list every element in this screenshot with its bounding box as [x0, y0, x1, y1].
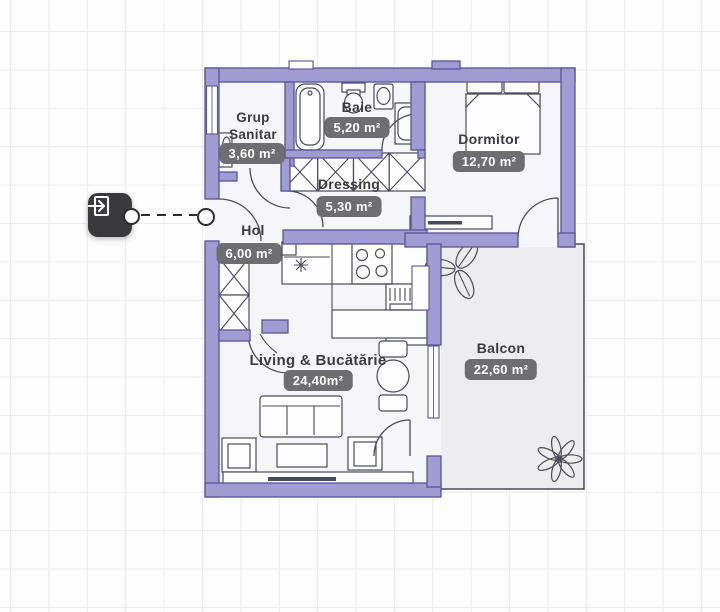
room-label-hol: Hol	[241, 222, 264, 240]
room-label-dormitor: Dormitor	[458, 131, 520, 149]
bathroom-sink	[374, 84, 393, 109]
area-badge-baie: 5,20 m²	[325, 117, 390, 138]
room-label-dressing: Dressing	[318, 176, 380, 194]
floor-plan-drawing	[0, 0, 720, 612]
entry-dashed-connector	[141, 214, 197, 217]
bathtub	[296, 84, 324, 150]
floorplan-canvas: Grup Sanitar 3,60 m² Baie 5,20 m² Dormit…	[0, 0, 720, 612]
sofa	[260, 396, 342, 437]
room-label-balcon: Balcon	[477, 340, 525, 358]
room-label-living: Living & Bucătărie	[249, 352, 386, 371]
entry-wall-handle[interactable]	[197, 208, 215, 226]
area-badge-balcon: 22,60 m²	[465, 359, 537, 380]
area-badge-living: 24,40m²	[284, 370, 353, 391]
wardrobe-hol	[219, 258, 249, 332]
entry-connector-dot	[123, 208, 140, 225]
door-enter-icon	[88, 193, 114, 219]
sink-icon	[294, 258, 308, 272]
armchair-left	[222, 438, 256, 472]
area-badge-dressing: 5,30 m²	[317, 196, 382, 217]
area-badge-grup-sanitar: 3,60 m²	[220, 143, 285, 164]
coffee-table	[277, 444, 327, 467]
room-label-grup-sanitar: Grup Sanitar	[216, 110, 290, 144]
area-badge-dormitor: 12,70 m²	[453, 151, 525, 172]
room-label-baie: Baie	[342, 99, 373, 117]
area-badge-hol: 6,00 m²	[217, 243, 282, 264]
